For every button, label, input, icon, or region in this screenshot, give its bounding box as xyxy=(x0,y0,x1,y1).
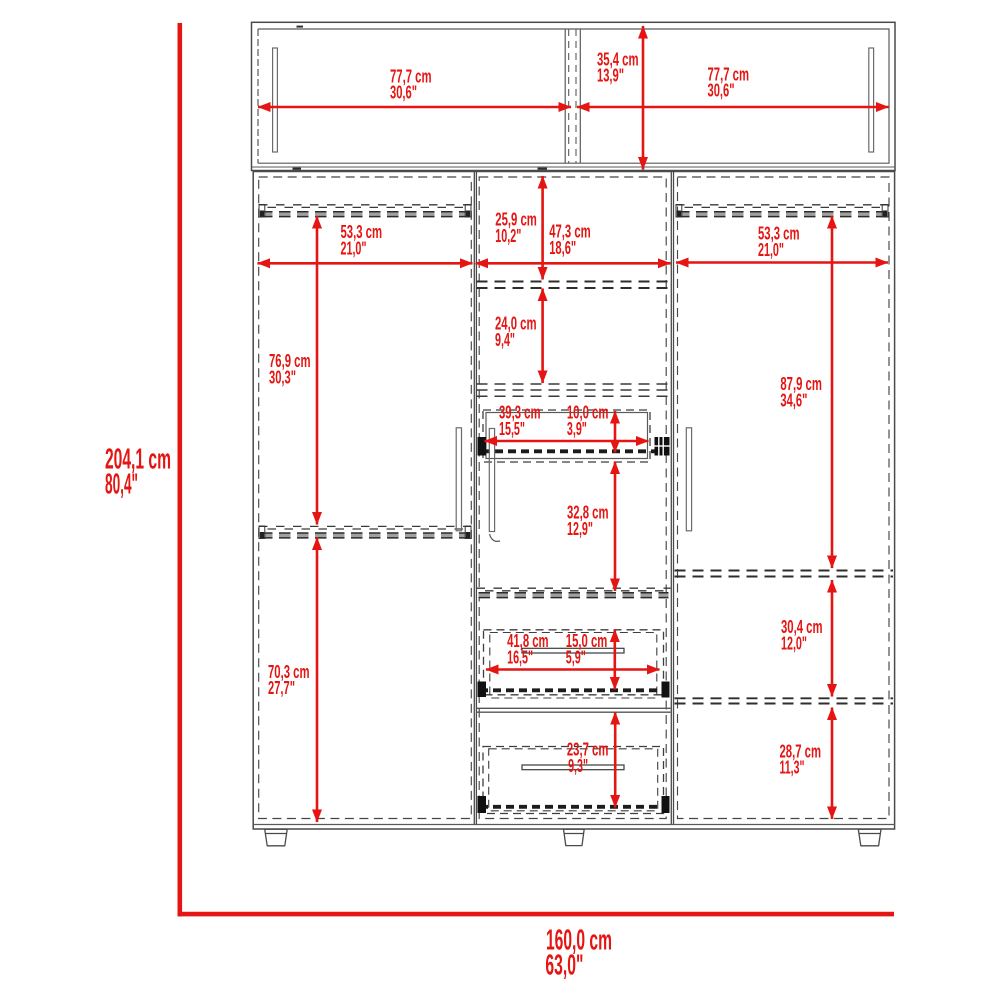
svg-text:21,0": 21,0" xyxy=(758,240,784,260)
svg-text:16,5": 16,5" xyxy=(507,647,533,667)
svg-text:34,6": 34,6" xyxy=(780,390,807,410)
svg-text:9,3": 9,3" xyxy=(568,756,588,776)
svg-text:5,9": 5,9" xyxy=(566,647,586,667)
svg-text:10,2": 10,2" xyxy=(495,226,521,246)
svg-text:63,0": 63,0" xyxy=(545,950,583,982)
svg-text:9,4": 9,4" xyxy=(495,330,515,350)
svg-text:80,4": 80,4" xyxy=(105,469,138,501)
svg-text:13,9": 13,9" xyxy=(597,66,624,86)
svg-text:30,6": 30,6" xyxy=(390,82,417,102)
svg-text:15,5": 15,5" xyxy=(499,419,525,439)
svg-text:11,3": 11,3" xyxy=(780,758,805,778)
svg-text:21,0": 21,0" xyxy=(341,239,367,259)
svg-text:12,0": 12,0" xyxy=(781,633,807,653)
svg-text:18,6": 18,6" xyxy=(549,238,576,258)
svg-text:30,6": 30,6" xyxy=(708,81,735,101)
svg-text:27,7": 27,7" xyxy=(268,678,295,698)
svg-text:3,9": 3,9" xyxy=(567,419,587,439)
svg-text:12,9": 12,9" xyxy=(567,519,593,539)
svg-text:30,3": 30,3" xyxy=(269,367,296,387)
